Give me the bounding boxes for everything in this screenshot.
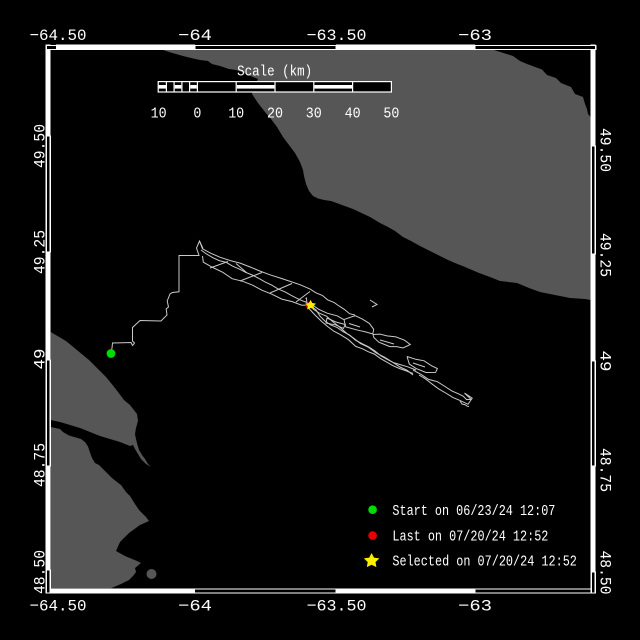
svg-text:Last on 07/20/24 12:52: Last on 07/20/24 12:52 — [392, 529, 548, 546]
svg-text:10: 10 — [151, 106, 167, 123]
svg-text:−63.50: −63.50 — [307, 598, 367, 616]
svg-text:20: 20 — [267, 106, 283, 123]
svg-text:49.25: 49.25 — [595, 233, 613, 277]
svg-text:−63.50: −63.50 — [307, 27, 367, 45]
svg-text:48.75: 48.75 — [595, 448, 613, 492]
svg-text:30: 30 — [306, 106, 322, 123]
svg-text:49.50: 49.50 — [32, 124, 50, 168]
svg-text:48.75: 48.75 — [32, 443, 50, 487]
svg-text:48.50: 48.50 — [595, 551, 613, 595]
svg-text:−63: −63 — [458, 27, 492, 45]
svg-text:Start on 06/23/24 12:07: Start on 06/23/24 12:07 — [392, 503, 555, 520]
svg-text:49.25: 49.25 — [32, 230, 50, 274]
svg-text:−64.50: −64.50 — [30, 598, 87, 616]
svg-text:50: 50 — [383, 106, 399, 123]
svg-text:0: 0 — [193, 106, 201, 123]
svg-text:10: 10 — [228, 106, 244, 123]
svg-text:Selected on 07/20/24 12:52: Selected on 07/20/24 12:52 — [392, 554, 577, 571]
svg-text:Scale (km): Scale (km) — [237, 64, 312, 81]
svg-text:49: 49 — [595, 351, 613, 372]
svg-text:−64: −64 — [178, 598, 212, 616]
svg-text:48.50: 48.50 — [32, 550, 50, 594]
svg-text:−64: −64 — [178, 27, 212, 45]
svg-text:−63: −63 — [458, 598, 492, 616]
svg-text:−64.50: −64.50 — [30, 27, 87, 45]
svg-text:49: 49 — [32, 349, 50, 370]
svg-text:40: 40 — [345, 106, 361, 123]
svg-text:49.50: 49.50 — [595, 128, 613, 172]
